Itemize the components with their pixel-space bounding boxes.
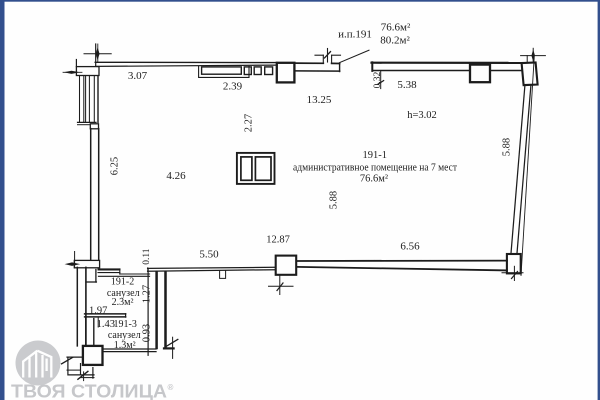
svg-text:3.07: 3.07 — [128, 70, 148, 82]
svg-text:1.27: 1.27 — [142, 285, 153, 303]
svg-text:6.25: 6.25 — [109, 157, 120, 175]
svg-text:191-2: 191-2 — [111, 276, 134, 287]
svg-text:2.3м²: 2.3м² — [112, 297, 134, 308]
svg-text:h=3.02: h=3.02 — [407, 110, 437, 121]
svg-text:191-1: 191-1 — [363, 150, 388, 161]
svg-text:13.25: 13.25 — [307, 94, 332, 106]
svg-text:5.50: 5.50 — [199, 248, 219, 260]
svg-text:0.32: 0.32 — [373, 71, 383, 88]
svg-text:административное помещение на: административное помещение на 7 мест — [293, 162, 457, 173]
svg-text:и.п.191: и.п.191 — [338, 29, 372, 41]
svg-text:6.56: 6.56 — [400, 241, 420, 253]
svg-text:191-3: 191-3 — [114, 319, 137, 330]
svg-text:76.6м²: 76.6м² — [360, 173, 388, 184]
svg-text:2.39: 2.39 — [223, 81, 243, 93]
svg-text:1.97: 1.97 — [89, 305, 107, 316]
svg-text:0.11: 0.11 — [142, 248, 152, 265]
svg-text:1.3м²: 1.3м² — [114, 340, 136, 351]
svg-text:80.2м²: 80.2м² — [380, 35, 410, 47]
svg-text:5.88: 5.88 — [329, 191, 340, 209]
svg-text:12.87: 12.87 — [266, 234, 290, 245]
svg-text:®: ® — [168, 383, 174, 392]
svg-text:76.6м²: 76.6м² — [381, 22, 411, 34]
svg-text:0.93: 0.93 — [142, 324, 153, 342]
svg-text:1.43: 1.43 — [97, 319, 115, 330]
svg-text:4.26: 4.26 — [166, 170, 186, 182]
svg-text:ТВОЯ СТОЛИЦА: ТВОЯ СТОЛИЦА — [11, 382, 167, 400]
svg-text:5.38: 5.38 — [397, 79, 417, 91]
svg-text:2.27: 2.27 — [244, 114, 255, 132]
svg-text:5.88: 5.88 — [501, 138, 512, 156]
